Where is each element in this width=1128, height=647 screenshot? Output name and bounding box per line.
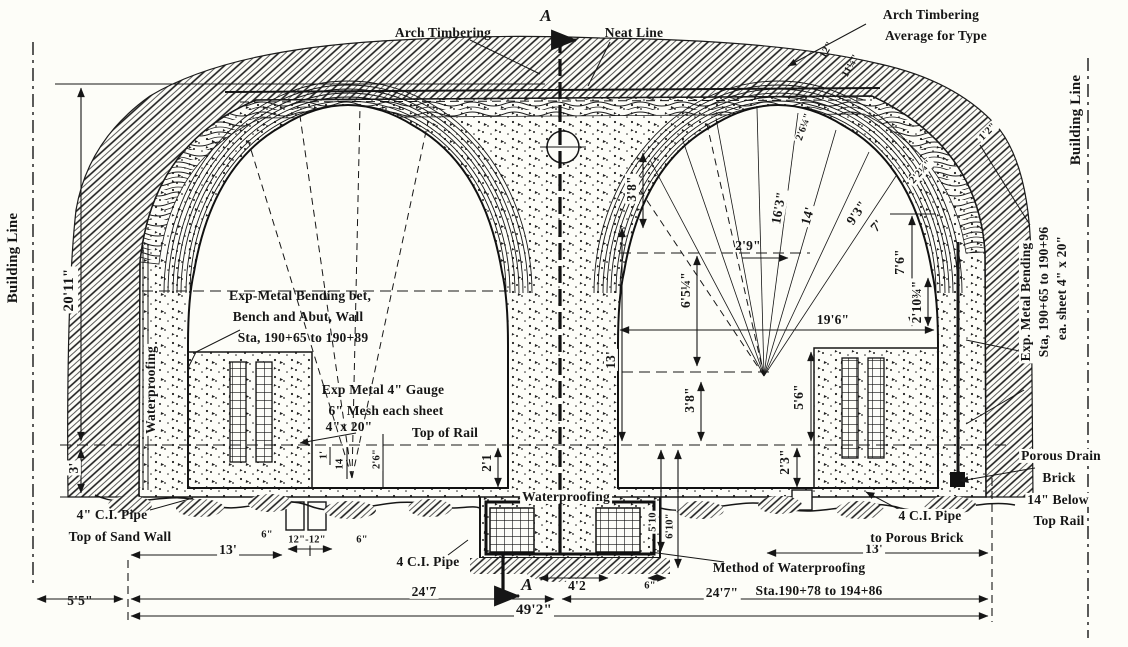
label-arch-timbering: Arch Timbering	[395, 26, 491, 40]
label-exp-bending-1: Exp-Metal Bending bet,	[229, 289, 371, 303]
label-dim-6-right: 6"	[354, 534, 369, 545]
label-dim-6-5: 6'5¼"	[679, 270, 693, 310]
label-method-2: Sta.190+78 to 194+86	[755, 584, 882, 598]
label-dim-6-pit: 6"	[642, 580, 657, 591]
label-waterproofing-left: Waterproofing	[144, 344, 158, 436]
label-dim-14in: 14	[334, 457, 345, 472]
label-dim-12-12: 12"-12"	[286, 534, 328, 545]
label-method-1: Method of Waterproofing	[713, 561, 866, 575]
label-dim-2-9: 2'9"	[735, 239, 761, 253]
label-building-line-left: Building Line	[6, 213, 22, 304]
label-dim-5-10: 5'10	[647, 510, 658, 533]
label-ci-pipe-bottom: 4 C.I. Pipe	[397, 555, 460, 569]
label-dim-5-6: 5'6"	[792, 382, 806, 412]
label-gauge-2: 6" Mesh each sheet	[329, 404, 444, 418]
label-ci-porous-1: 4 C.I. Pipe	[897, 509, 964, 523]
label-exp-metal-right-1: Exp. Metal Bending	[1019, 241, 1033, 364]
label-arch-avg-1: Arch Timbering	[883, 8, 979, 22]
label-dim-2-10: 2'10¾"	[910, 279, 924, 326]
label-dim-5-5: 5'5"	[67, 594, 93, 608]
label-dim-13-tube: 13'	[604, 349, 618, 371]
drawing-canvas	[0, 0, 1128, 647]
label-arch-avg-2: Average for Type	[885, 29, 987, 43]
label-dim-3ft: 3'	[67, 461, 81, 476]
label-neat-line: Neat Line	[605, 26, 663, 40]
label-porous-drain-2: Brick	[1040, 471, 1077, 485]
label-dim-13-left: 13'	[217, 543, 239, 557]
drawing-sheet: Arch Timbering A Neat Line Arch Timberin…	[0, 0, 1128, 647]
label-dim-24-7-left: 24'7	[410, 585, 439, 599]
label-dim-19-6: 19'6"	[815, 313, 852, 327]
label-building-line-right: Building Line	[1069, 75, 1085, 166]
label-waterproofing-bottom: Waterproofing	[520, 490, 612, 504]
label-gauge-1: Exp Metal 4" Gauge	[322, 383, 444, 397]
label-dim-6-left: 6"	[259, 529, 274, 540]
label-dim-2-6: 2'6"	[371, 447, 382, 471]
label-dim-1ft: 1'	[318, 449, 329, 462]
label-dim-6-10: 6'10"	[664, 511, 675, 541]
label-exp-bending-3: Sta, 190+65 to 190+89	[238, 331, 369, 345]
label-gauge-3: 4"x 20"	[326, 420, 373, 434]
label-exp-metal-right-2: Sta, 190+65 to 190+96	[1037, 225, 1051, 360]
label-exp-bending-2: Bench and Abut, Wall	[233, 310, 364, 324]
label-dim-4-2: 4'2	[566, 579, 588, 593]
label-dim-20-11: 20'11"	[62, 267, 78, 314]
label-top-of-sand-wall: Top of Sand Wall	[69, 530, 172, 544]
label-dim-49-2: 49'2"	[514, 603, 554, 619]
label-porous-drain-1: Porous Drain	[1019, 449, 1103, 463]
label-dim-24-7-right: 24'7"	[704, 586, 741, 600]
label-ci-porous-2: to Porous Brick	[868, 531, 966, 545]
label-section-a-top: A	[540, 7, 552, 25]
label-exp-metal-right-3: ea. sheet 4" x 20"	[1055, 234, 1069, 342]
label-dim-3-8-top: 3'8"	[625, 174, 639, 204]
label-dim-7-6: 7'6"	[893, 247, 907, 277]
label-ci-pipe-left: 4" C.I. Pipe	[77, 508, 148, 522]
label-dim-2-1: 2'1	[480, 452, 494, 474]
label-dim-2-3: 2'3"	[778, 447, 792, 477]
label-porous-drain-3: 14" Below	[1025, 493, 1090, 507]
label-dim-3-8-low: 3'8"	[683, 385, 697, 415]
label-section-a-bottom: A	[521, 576, 533, 594]
label-top-of-rail: Top of Rail	[412, 426, 478, 440]
label-porous-drain-4: Top Rail	[1032, 514, 1087, 528]
